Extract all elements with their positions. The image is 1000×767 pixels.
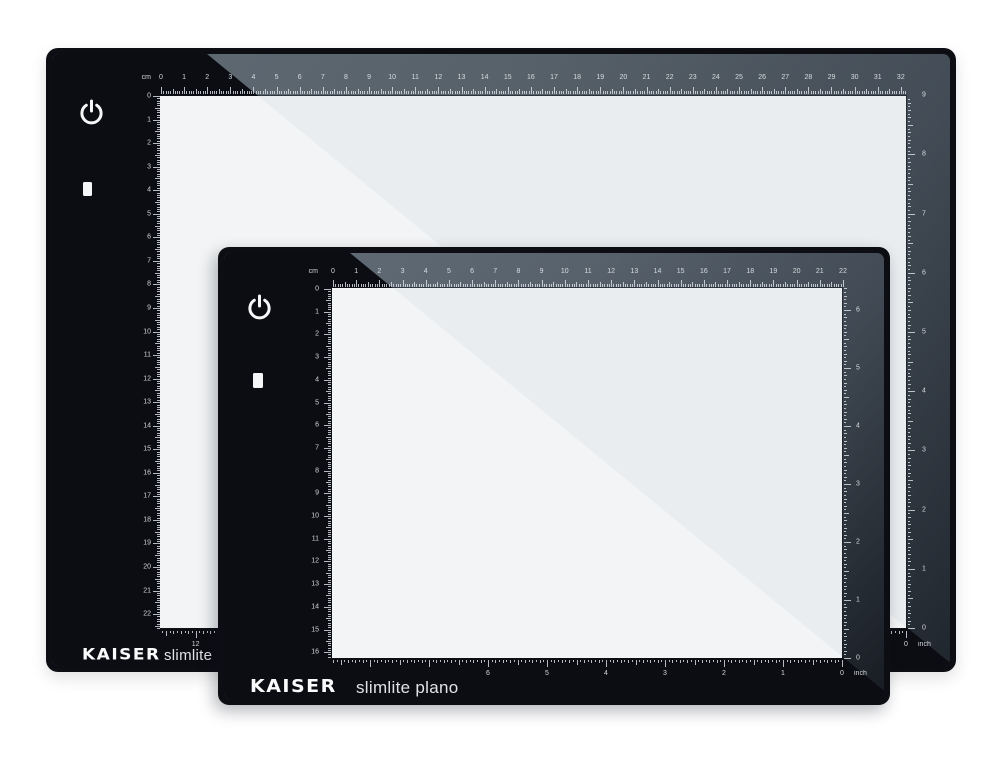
power-button[interactable] <box>78 98 105 129</box>
inch-unit-label: inch <box>854 670 867 678</box>
power-icon <box>246 293 273 324</box>
power-icon <box>78 98 105 129</box>
power-button[interactable] <box>246 293 273 324</box>
model-name: slimlite plano <box>356 678 458 698</box>
inch-unit-label: inch <box>918 641 931 649</box>
brand-logo: KAISER <box>250 676 337 697</box>
product-photo: 0123456789101112131415161718192021222324… <box>0 0 1000 767</box>
light-panel-small: 012345678910111213141516171819202122 012… <box>218 247 890 705</box>
cm-unit-label: cm <box>300 268 318 276</box>
cm-unit-label: cm <box>133 74 151 82</box>
model-name: slimlite <box>164 647 212 664</box>
power-indicator-light <box>253 373 263 388</box>
power-indicator-light <box>83 182 92 196</box>
light-screen-small <box>332 288 842 658</box>
screen-reflection-small <box>332 288 842 658</box>
brand-logo: KAISER <box>82 645 161 664</box>
